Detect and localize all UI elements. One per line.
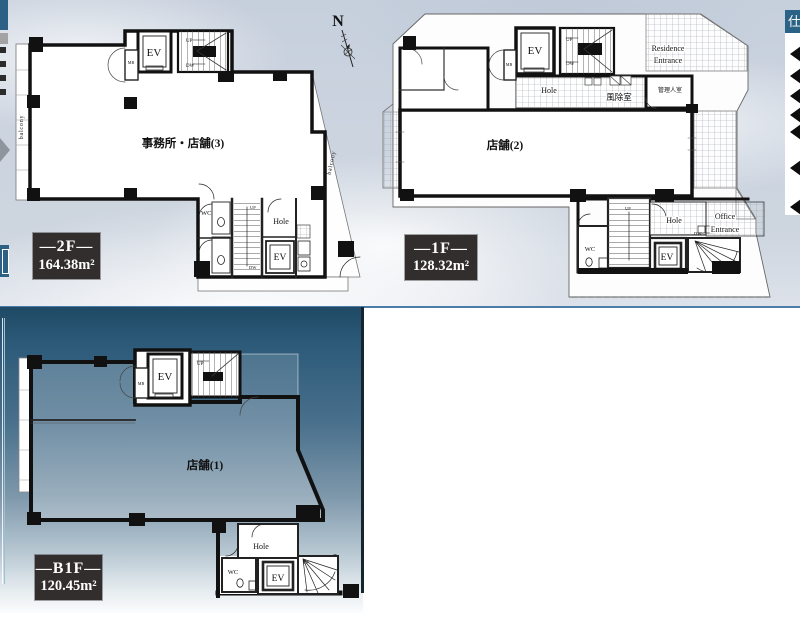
1f-mb-label: MB xyxy=(506,62,513,67)
1f-ev-label: EV xyxy=(528,45,543,57)
1f-wc-label: WC xyxy=(585,246,595,253)
bullet-arrow-icon xyxy=(790,107,800,123)
floor-tag-1f: —1F— 128.32m² xyxy=(405,235,477,280)
1f-dw-label: DW xyxy=(566,62,575,67)
1f-residence-entrance-line1: Residence xyxy=(652,44,685,53)
b1f-up-core-label: UP xyxy=(303,560,309,565)
2f-balcony-left-label: balcony xyxy=(19,115,25,140)
floor-tag-2f: —2F— 164.38m² xyxy=(33,233,100,279)
b1f-core xyxy=(218,520,340,596)
2f-meter-box xyxy=(125,50,138,80)
1f-stairs-top xyxy=(560,28,614,74)
2f-up-core-label: UP xyxy=(250,205,256,210)
2f-ev-label: EV xyxy=(147,47,162,59)
1f-dw-core-label: DW xyxy=(694,231,702,236)
b1f-mb-label: MB xyxy=(138,381,145,386)
1f-office-entrance-line1: Office xyxy=(715,212,736,221)
b1f-ev-core-label: EV xyxy=(272,574,285,584)
2f-wc-label: WC xyxy=(201,210,211,217)
floor-tag-1f-name: —1F— xyxy=(405,240,477,258)
floor-tag-2f-area: 164.38m² xyxy=(33,257,100,274)
1f-hole-upper-label: Hole xyxy=(541,86,557,95)
floor-tag-1f-area: 128.32m² xyxy=(405,258,477,275)
2f-hole-label: Hole xyxy=(273,217,289,226)
1f-up-label: UP xyxy=(566,38,573,43)
2f-up-label: UP xyxy=(186,39,193,44)
2f-dw-core-label: DW xyxy=(249,265,257,270)
b1f-room-label: 店舗(1) xyxy=(187,458,224,472)
bullet-arrow-icon xyxy=(790,199,800,215)
1f-manager-room-label: 管理人室 xyxy=(658,86,682,94)
2f-mb-label: MB xyxy=(128,60,135,65)
1f-hole-lower-label: Hole xyxy=(666,216,682,225)
bullet-arrow-icon xyxy=(790,124,800,140)
spec-panel-cropped: 仕 xyxy=(785,10,800,215)
bullet-arrow-icon xyxy=(790,46,800,62)
b1f-up-label: UP xyxy=(197,362,204,367)
bullet-arrow-icon xyxy=(790,68,800,84)
b1f-wc-label: WC xyxy=(228,569,238,576)
1f-up-core-label: UP xyxy=(625,206,631,211)
1f-residence-entrance-line2: Entrance xyxy=(654,56,683,65)
b1f-stairs-top xyxy=(190,352,240,397)
bullet-arrow-icon xyxy=(790,88,800,104)
b1f-hole-label: Hole xyxy=(253,542,269,551)
2f-ev-core-label: EV xyxy=(274,253,287,263)
2f-room-label: 事務所・店舗(3) xyxy=(142,136,225,150)
1f-office-entrance-line2: Entrance xyxy=(711,225,740,234)
floor-tag-b1f-name: —B1F— xyxy=(35,560,102,578)
b1f-ev-label: EV xyxy=(158,371,173,383)
compass: N xyxy=(332,13,355,67)
1f-ev-core-label: EV xyxy=(661,253,674,263)
1f-windbreak-room-label: 風除室 xyxy=(606,92,632,102)
bullet-arrow-icon xyxy=(790,160,800,176)
flyer-page: EV MB UP DW 事務所・店舗(3) WC UP DW Hole EV b… xyxy=(0,0,800,638)
north-label: N xyxy=(332,13,344,30)
floor-plans-drawing: EV MB UP DW 事務所・店舗(3) WC UP DW Hole EV b… xyxy=(0,0,800,638)
spec-panel-header: 仕 xyxy=(785,10,800,33)
2f-dw-label: DW xyxy=(186,64,195,69)
floor-tag-2f-name: —2F— xyxy=(33,238,100,256)
floor-tag-b1f: —B1F— 120.45m² xyxy=(35,555,102,600)
floor-tag-b1f-area: 120.45m² xyxy=(35,578,102,595)
1f-room-label: 店舗(2) xyxy=(487,138,524,152)
